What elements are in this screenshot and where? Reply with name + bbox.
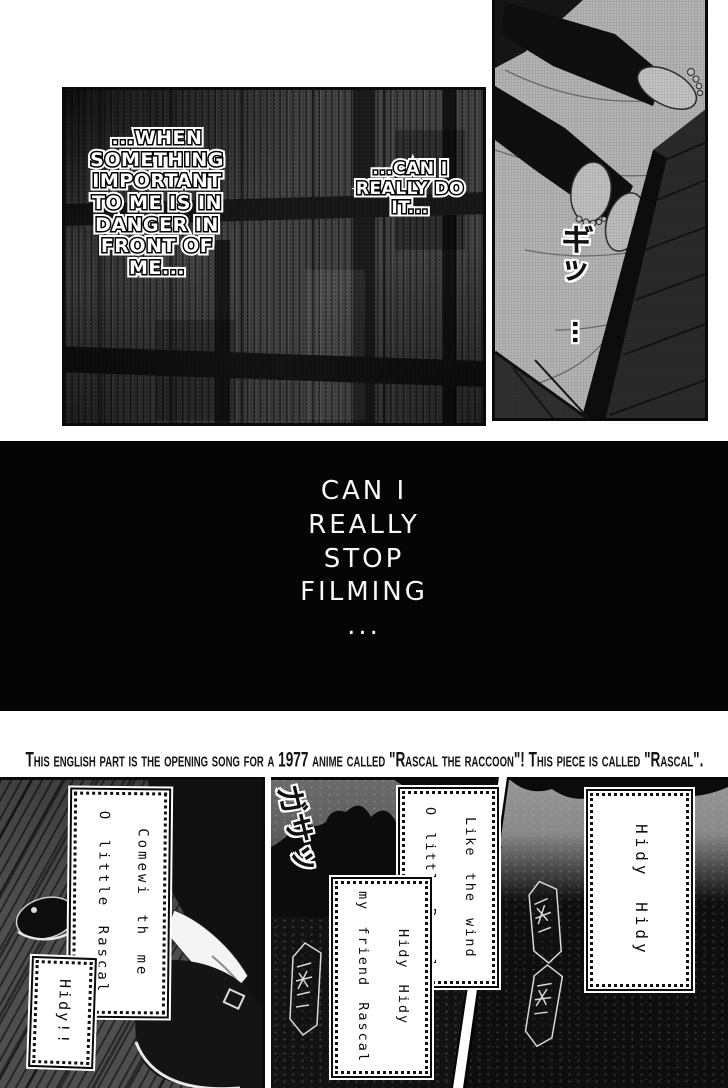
lantern-sketch-pair	[521, 877, 571, 1057]
panel-bed-legs: ギッ …	[492, 0, 708, 421]
speech-text-fill: ...WHEN SOMETHING IMPORTANT TO ME IS IN …	[73, 128, 241, 280]
panel-wood-floor: ...WHEN SOMETHING IMPORTANT TO ME IS IN …	[62, 87, 486, 426]
panel-black-monologue: CAN I REALLY STOP FILMING ...	[0, 441, 728, 711]
sfx-dots-text: …	[567, 320, 595, 348]
translator-note-row: This english part is the opening song fo…	[0, 743, 728, 777]
manga-page: ...WHEN SOMETHING IMPORTANT TO ME IS IN …	[0, 0, 728, 1088]
translator-note-text: This english part is the opening song fo…	[25, 748, 703, 773]
lyric-text: Hidy Hidy	[595, 798, 684, 982]
lyric-text: Hidy!!	[37, 965, 87, 1060]
monologue-text: CAN I REALLY STOP FILMING ...	[0, 475, 728, 644]
lyric-text: Hidy Hidy my friend Rascal	[340, 886, 423, 1069]
speech-text-fill: ...CAN I REALLY DO IT...	[337, 160, 483, 219]
lantern-sketch	[283, 939, 329, 1041]
lyric-box-hidy-hidy: Hidy Hidy	[586, 789, 693, 991]
lyric-box-hidy-exclaim: Hidy!!	[28, 956, 97, 1069]
halftone-overlay	[495, 0, 705, 418]
lyric-box-my-friend-rascal: Hidy Hidy my friend Rascal	[331, 877, 432, 1078]
